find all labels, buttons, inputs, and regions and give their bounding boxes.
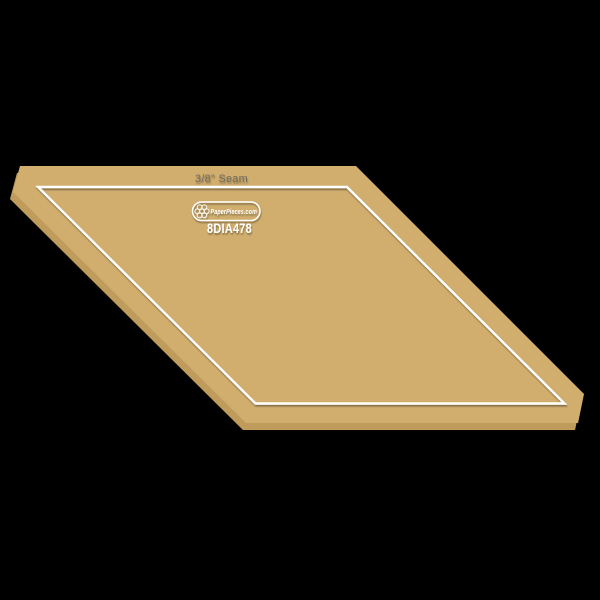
acrylic-template-graphic: 3/8" Seam PaperPieces.com 8DIA478 bbox=[0, 0, 600, 600]
product-code-label: 8DIA478 bbox=[207, 221, 252, 236]
template-face bbox=[13, 166, 584, 423]
page-background: { "product": { "seam_label": "3/8\" Seam… bbox=[0, 0, 600, 600]
product-image-stage: 3/8" Seam PaperPieces.com 8DIA478 bbox=[0, 0, 600, 600]
acrylic-template: 3/8" Seam PaperPieces.com 8DIA478 bbox=[10, 166, 584, 430]
brand-label: PaperPieces.com bbox=[211, 207, 258, 216]
seam-allowance-label: 3/8" Seam bbox=[195, 173, 248, 185]
